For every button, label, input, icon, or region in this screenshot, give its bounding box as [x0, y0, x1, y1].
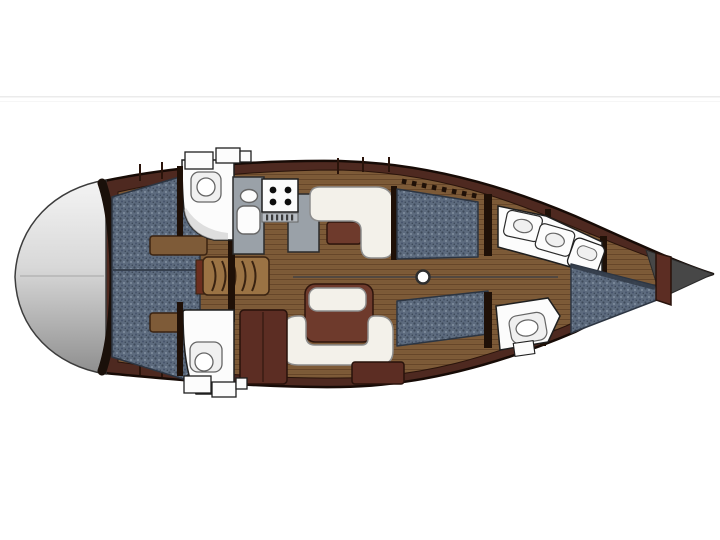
burner [285, 187, 292, 194]
bulkhead-strip [177, 166, 183, 236]
vent-tick [271, 215, 273, 221]
vent-tick [286, 215, 288, 221]
mast-step [417, 271, 430, 284]
toilet-bowl [195, 353, 213, 371]
burner [270, 199, 277, 206]
aft-berth-step [150, 236, 207, 255]
vent-tick [281, 215, 283, 221]
burner [285, 199, 292, 206]
vent-tick [291, 215, 293, 221]
divider-line-soft [0, 101, 720, 102]
bulkhead-strip [484, 194, 492, 256]
toilet-bowl [197, 178, 215, 196]
head-cabinet [216, 148, 240, 163]
head-cabinet-knob [240, 151, 251, 162]
vent-tick [266, 215, 268, 221]
head-cabinet [185, 152, 213, 169]
head-cabinet [184, 376, 211, 393]
burner [270, 187, 277, 194]
port-berth-cushion [397, 189, 478, 259]
galley-sink-basin [237, 206, 260, 234]
head-cabinet [212, 382, 236, 397]
bulkhead-strip [484, 292, 492, 348]
head-cabinet [513, 341, 535, 357]
bulkhead-strip [177, 302, 183, 376]
galley-sink-round [241, 190, 258, 203]
side-table [327, 222, 361, 244]
vent-tick [276, 215, 278, 221]
saloon-bench-cushion [309, 288, 366, 311]
sideboard-cabinet [352, 362, 404, 384]
divider-line [0, 96, 720, 98]
floorplan-stage [0, 0, 720, 540]
bow-locker-bar [656, 253, 671, 305]
bulkhead-strip [391, 186, 397, 260]
galley-stove [262, 179, 298, 212]
yacht-deck-plan [0, 0, 720, 540]
head-cabinet-knob [236, 378, 247, 389]
